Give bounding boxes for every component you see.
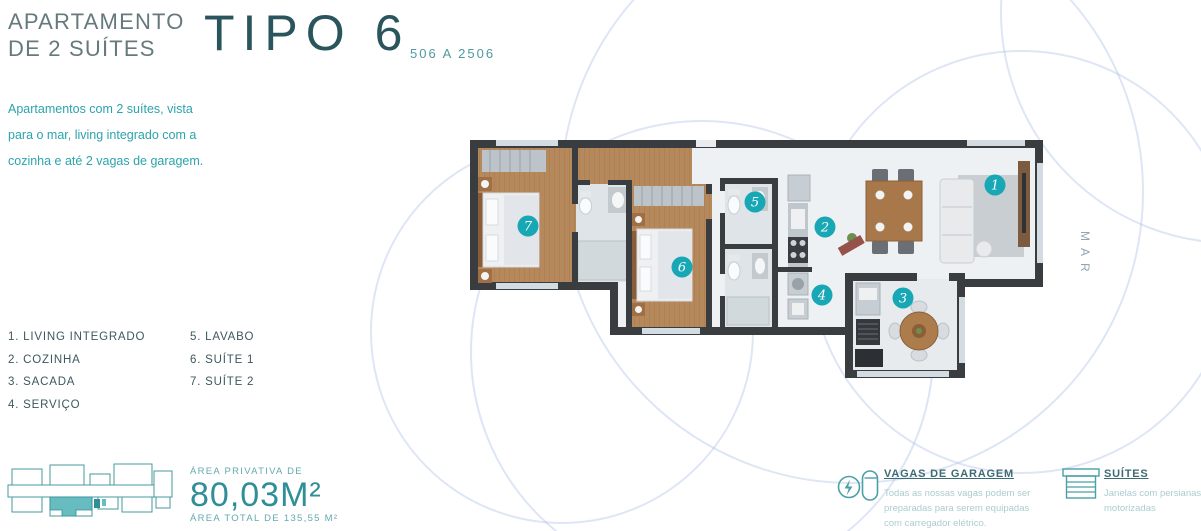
svg-text:3: 3 [899, 292, 907, 307]
suites-feature-text: Janelas com persianas motorizadas [1104, 486, 1201, 516]
svg-text:2: 2 [820, 221, 829, 236]
subtitle-line2: DE 2 SUÍTES [8, 35, 185, 62]
fridge [788, 175, 810, 201]
pillow [486, 235, 498, 261]
toilet [728, 262, 740, 280]
shower [727, 297, 769, 325]
cabinet [855, 349, 883, 367]
area-info: ÁREA PRIVATIVA DE 80,03M² ÁREA TOTAL DE … [190, 466, 338, 524]
svg-text:6: 6 [678, 261, 686, 276]
description-text: Apartamentos com 2 suítes, vista para o … [8, 96, 220, 174]
suites-feature-title: SUÍTES [1104, 468, 1201, 480]
chair [898, 241, 914, 254]
legend-column-2: 5. LAVABO 6. SUÍTE 1 7. SUÍTE 2 [190, 331, 254, 399]
pillow [640, 235, 651, 259]
window-blinds-icon [1060, 466, 1102, 502]
wardrobe [634, 186, 704, 206]
ev-charger-icon [836, 464, 882, 506]
toilet [728, 196, 740, 214]
garage-feature-text: Todas as nossas vagas podem ser preparad… [884, 486, 1046, 531]
dining-set [866, 169, 922, 254]
suites-feature: SUÍTES Janelas com persianas motorizadas [1104, 468, 1201, 516]
room-marker-cozinha: 2 [815, 217, 836, 238]
chair [872, 241, 888, 254]
brochure-page: APARTAMENTO DE 2 SUÍTES TIPO 6 506 A 250… [0, 0, 1201, 531]
svg-text:7: 7 [524, 220, 533, 235]
wardrobe [482, 150, 546, 172]
pouf [976, 241, 992, 257]
room-marker-lavabo: 5 [745, 192, 766, 213]
sea-label: MAR [1078, 231, 1092, 279]
dining-table [866, 181, 922, 241]
page-title: TIPO 6 [204, 4, 410, 62]
svg-text:1: 1 [991, 179, 999, 194]
legend-item: 3. SACADA [8, 376, 145, 388]
garage-feature-title: VAGAS DE GARAGEM [884, 468, 1046, 480]
chair [898, 169, 914, 182]
total-area-label: ÁREA TOTAL DE 135,55 M² [190, 513, 338, 524]
apartment-subtitle: APARTAMENTO DE 2 SUÍTES [8, 8, 185, 62]
room-marker-suite1: 6 [672, 257, 693, 278]
legend-item: 5. LAVABO [190, 331, 254, 343]
building-footprint [6, 460, 176, 522]
room-marker-sacada: 3 [893, 288, 914, 309]
tv [1022, 173, 1026, 233]
pillow [640, 267, 651, 291]
chair [911, 301, 927, 313]
legend-item: 1. LIVING INTEGRADO [8, 331, 145, 343]
bed-headboard [632, 231, 637, 299]
room-marker-servico: 4 [812, 285, 833, 306]
legend-item: 4. SERVIÇO [8, 399, 145, 411]
chair [937, 323, 949, 339]
chair [889, 323, 901, 339]
floor-plan: 1 2 3 4 5 6 7 [462, 133, 1047, 393]
chair [872, 169, 888, 182]
private-area-value: 80,03M² [190, 477, 338, 513]
legend-item: 6. SUÍTE 1 [190, 354, 254, 366]
bed-headboard [478, 193, 483, 267]
sofa [940, 179, 974, 263]
svg-text:5: 5 [751, 196, 759, 211]
pillow [486, 199, 498, 225]
unit-range: 506 A 2506 [410, 46, 495, 61]
legend-item: 7. SUÍTE 2 [190, 376, 254, 388]
room-marker-suite2: 7 [518, 216, 539, 237]
chair [911, 349, 927, 361]
svg-text:4: 4 [817, 289, 826, 304]
toilet [580, 198, 592, 214]
shower [578, 241, 628, 280]
kitchen-sink [791, 209, 805, 229]
room-marker-living: 1 [985, 175, 1006, 196]
subtitle-line1: APARTAMENTO [8, 8, 185, 35]
garage-feature: VAGAS DE GARAGEM Todas as nossas vagas p… [884, 468, 1046, 531]
legend-item: 2. COZINHA [8, 354, 145, 366]
grill [856, 319, 880, 345]
legend-column-1: 1. LIVING INTEGRADO 2. COZINHA 3. SACADA… [8, 331, 145, 421]
suite2-furniture [478, 150, 546, 283]
entry-door [696, 140, 716, 147]
stove [788, 237, 808, 263]
